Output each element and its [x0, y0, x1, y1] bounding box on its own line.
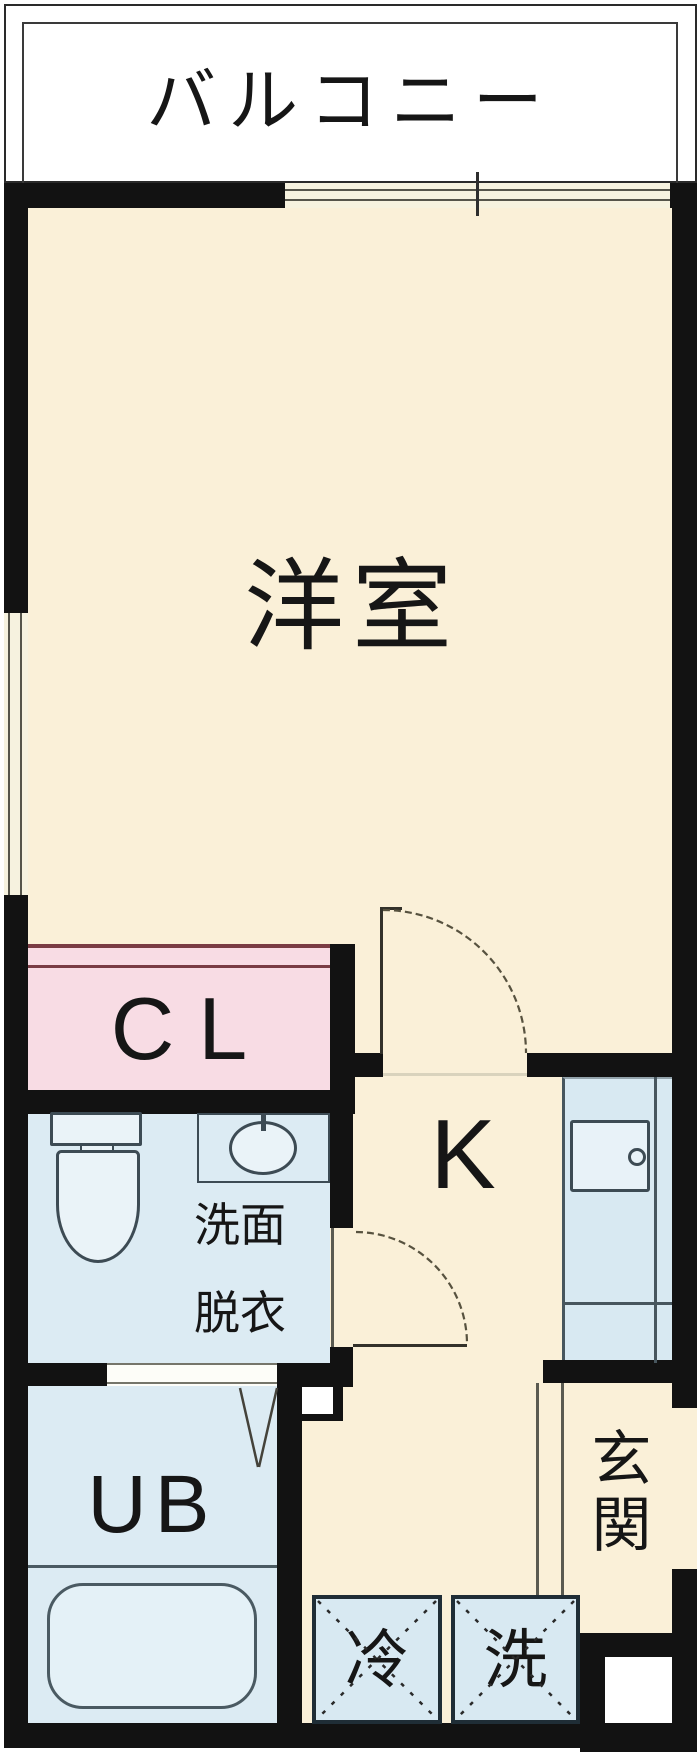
toilet-bowl	[56, 1150, 140, 1263]
door-opening-line	[383, 1073, 527, 1076]
window-line	[8, 613, 10, 895]
wall	[672, 183, 697, 1408]
refrigerator-space: 冷	[312, 1595, 442, 1724]
toilet-icon	[50, 1112, 142, 1146]
wall	[330, 944, 355, 1114]
refrigerator-label: 冷	[345, 1628, 409, 1692]
wall	[330, 1053, 383, 1077]
wall	[4, 1090, 355, 1114]
window-center-tick	[476, 172, 479, 216]
wall	[4, 183, 28, 613]
wall	[330, 1113, 353, 1228]
sliding-closet-door-icon	[28, 944, 330, 948]
counter-inner-line	[654, 1077, 657, 1363]
washroom-label-top: 洗面	[178, 1198, 302, 1252]
wall	[277, 1385, 302, 1723]
wall	[4, 183, 285, 208]
sliding-closet-door-icon	[28, 965, 330, 968]
door-leaf	[353, 1344, 467, 1347]
door-leaf-tick	[380, 907, 402, 910]
counter-bottom-line	[562, 1302, 672, 1305]
threshold-line	[107, 1363, 277, 1365]
kitchen-label: K	[412, 1102, 514, 1206]
wall	[543, 1360, 672, 1383]
bathtub-icon	[47, 1583, 257, 1709]
balcony-label: バルコニー	[4, 42, 697, 160]
entrance-door-opening	[672, 1408, 697, 1569]
floorplan: バルコニー	[0, 0, 700, 1752]
living-room-label: 洋室	[152, 552, 552, 662]
door-leaf	[380, 908, 383, 1054]
entrance-label: 玄関	[584, 1415, 648, 1571]
entrance-porch-step	[605, 1657, 672, 1723]
pipe-space-notch	[302, 1387, 333, 1414]
door-jamb	[331, 1228, 334, 1347]
wall	[4, 895, 28, 1748]
washroom-label-bottom: 脱衣	[178, 1284, 302, 1342]
window-line	[20, 613, 22, 895]
washbasin-tap	[261, 1113, 266, 1131]
closet-label: CL	[28, 975, 330, 1083]
bathroom-label: UB	[28, 1455, 277, 1555]
threshold-line	[107, 1382, 277, 1384]
bathroom-divider-line	[28, 1565, 277, 1568]
washing-machine-space: 洗	[451, 1595, 580, 1724]
washing-machine-label: 洗	[484, 1628, 548, 1692]
entrance-step-line	[536, 1383, 539, 1595]
wall	[4, 1363, 107, 1386]
entrance-step-line	[561, 1383, 564, 1595]
wall	[527, 1053, 672, 1077]
kitchen-tap	[628, 1148, 646, 1166]
